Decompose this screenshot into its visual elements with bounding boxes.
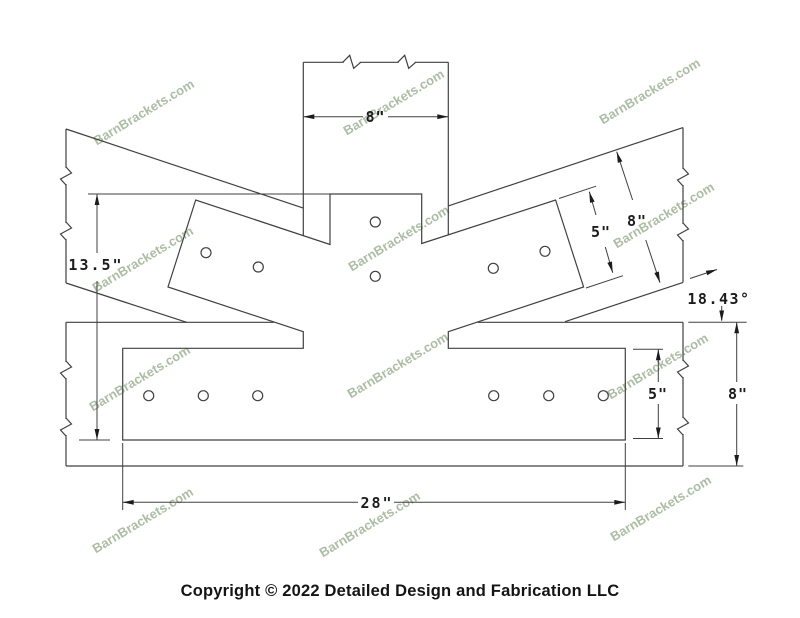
dimension-label: 28" [360,494,393,512]
watermark-text: BarnBrackets.com [341,66,447,138]
watermark-text: BarnBrackets.com [91,76,197,148]
dimension-arrowhead [437,114,448,119]
bolt-hole [201,248,211,258]
bolt-hole [540,246,550,256]
dimension-label: 8" [627,212,647,230]
dimension-arrowhead [734,322,739,333]
watermark-text: BarnBrackets.com [608,472,714,544]
dimension-label: 13.5" [68,256,123,274]
dimension-arrowhead [706,270,717,276]
bolt-hole [370,271,380,281]
dimension-arrowhead [656,349,661,360]
bolt-hole [253,262,263,272]
dimension-arrowhead [589,192,594,203]
dimension-arrowhead [656,428,661,439]
bracket-plate-outline [123,194,626,440]
dimension-arrowhead [734,455,739,466]
timber-edge-line [66,283,187,322]
dimension-arrowhead [303,114,314,119]
bolt-hole [544,391,554,401]
bolt-hole [198,391,208,401]
bolt-hole [488,263,498,273]
drawing-canvas: BarnBrackets.comBarnBrackets.comBarnBrac… [0,0,800,618]
dimension-arrowhead [654,271,660,282]
dimension-arrowhead [617,152,623,163]
dimension-label: 5" [591,223,611,241]
bolt-hole [370,217,380,227]
bolt-hole [144,391,154,401]
dimension-arrowhead [95,429,100,440]
watermark-text: BarnBrackets.com [346,202,452,274]
dimension-arrowhead [123,500,134,505]
dimension-arrowhead [607,261,612,272]
bolt-hole [489,391,499,401]
dimension-arrowhead [95,194,100,205]
timber-edge-line [565,282,683,321]
dimension-label: 18.43° [687,290,750,308]
extension-line [586,276,623,288]
timber-edge-line [66,129,303,208]
bolt-hole [253,391,263,401]
watermark-text: BarnBrackets.com [87,342,193,414]
dimension-label: 5" [648,385,668,403]
bracket-diagram-svg: BarnBrackets.comBarnBrackets.comBarnBrac… [0,0,800,618]
dimension-label: 8" [728,385,748,403]
dimension-arrowhead [614,500,625,505]
watermark-text: BarnBrackets.com [345,329,451,401]
timber-edge-line [448,128,683,206]
dimension-label: 8" [365,108,385,126]
watermark-text: BarnBrackets.com [90,484,196,556]
bolt-hole [598,391,608,401]
dimension-arrowhead [719,311,724,322]
copyright-text: Copyright © 2022 Detailed Design and Fab… [0,582,800,601]
watermark-text: BarnBrackets.com [597,55,703,127]
